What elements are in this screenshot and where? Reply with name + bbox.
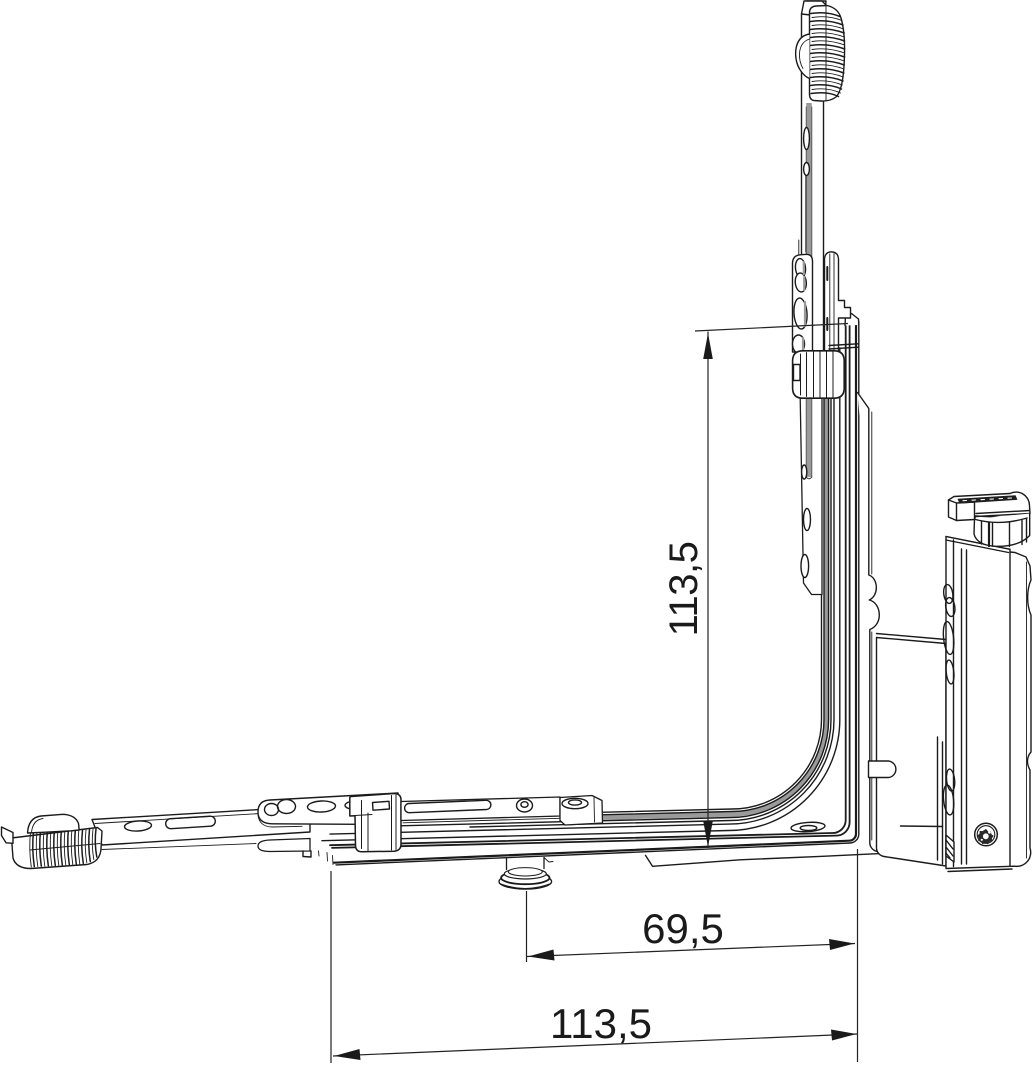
svg-text:113,5: 113,5 bbox=[550, 1000, 652, 1047]
svg-text:69,5: 69,5 bbox=[642, 905, 724, 952]
svg-text:113,5: 113,5 bbox=[662, 542, 706, 637]
